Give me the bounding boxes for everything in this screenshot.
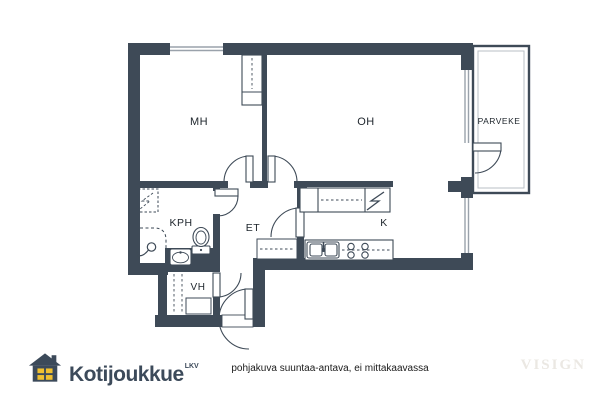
double-sink-icon xyxy=(307,242,339,258)
hallway-closet xyxy=(257,239,297,259)
room-label-vh: VH xyxy=(191,282,206,293)
door-entrance xyxy=(219,289,253,349)
door-kph xyxy=(215,189,238,216)
room-label-et: ET xyxy=(246,222,261,234)
toilet-icon xyxy=(192,228,210,255)
floorplan-drawing: MH OH PARVEKE KPH ET K VH xyxy=(0,0,600,400)
closet-cabinets xyxy=(174,274,211,314)
room-label-mh: MH xyxy=(190,116,208,128)
floorplan-page: MH OH PARVEKE KPH ET K VH KotijoukkueLKV… xyxy=(0,0,600,400)
door-vh xyxy=(213,273,241,297)
room-label-kph: KPH xyxy=(169,217,192,229)
washbasin-icon xyxy=(170,249,191,265)
door-kitchen xyxy=(271,208,304,237)
house-icon xyxy=(28,352,62,383)
visign-watermark: VISIGN xyxy=(521,357,586,374)
door-oh xyxy=(268,156,297,182)
window-right-lower xyxy=(461,198,473,253)
room-label-oh: OH xyxy=(357,116,375,128)
room-label-k: K xyxy=(380,217,388,229)
window-top-mh xyxy=(170,43,223,55)
washing-machine-reservation xyxy=(138,189,158,212)
disclaimer-caption: pohjakuva suuntaa-antava, ei mittakaavas… xyxy=(170,363,490,374)
kitchen-upper-counter xyxy=(300,188,390,212)
kitchen-lower-counter xyxy=(305,240,393,260)
room-label-parveke: PARVEKE xyxy=(478,116,521,126)
walls xyxy=(128,43,473,327)
bedroom-wardrobe xyxy=(242,55,262,105)
window-right-upper xyxy=(461,70,473,143)
door-balcony xyxy=(473,143,501,173)
brand-text: Kotijoukkue xyxy=(69,363,184,386)
door-mh xyxy=(224,156,253,182)
shower xyxy=(137,228,167,264)
